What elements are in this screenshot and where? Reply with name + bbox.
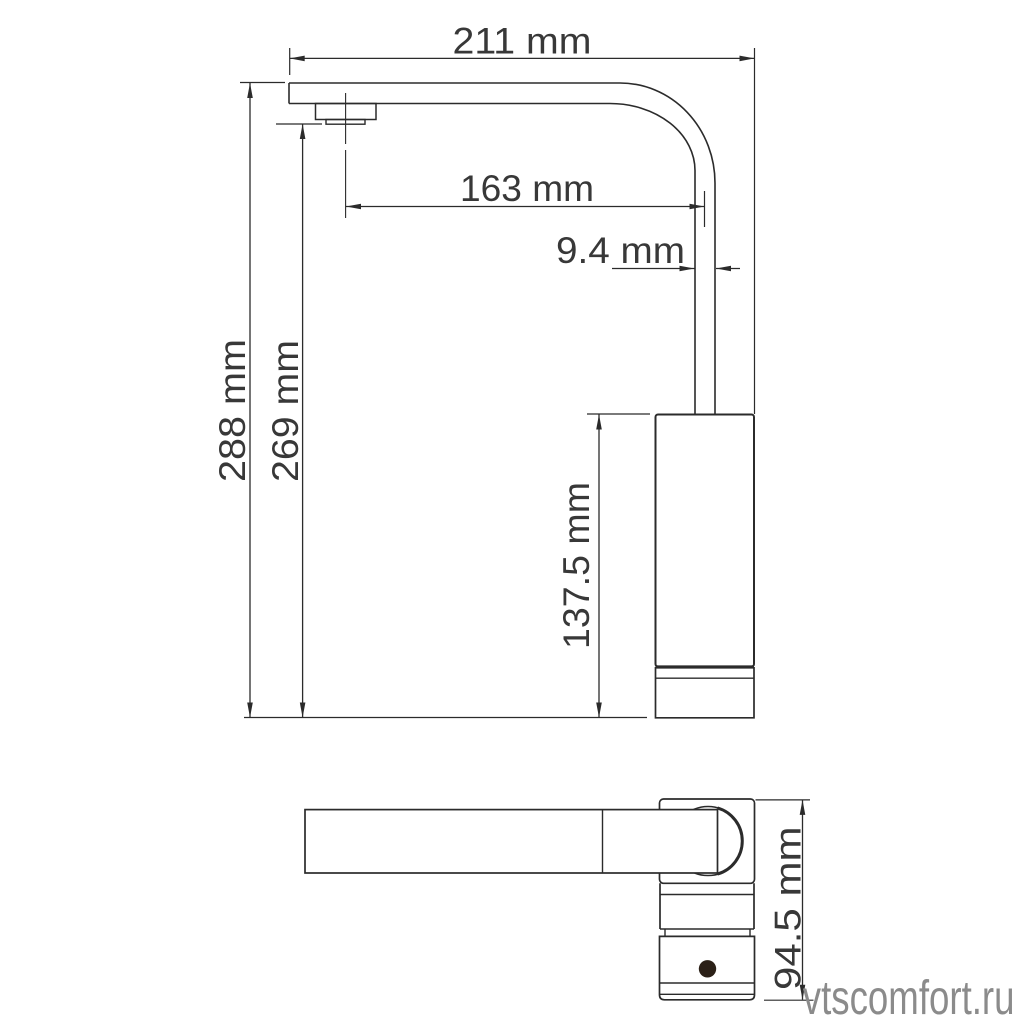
svg-text:9.4 mm: 9.4 mm <box>556 230 685 271</box>
svg-text:288 mm: 288 mm <box>212 339 253 482</box>
svg-text:269 mm: 269 mm <box>265 340 306 482</box>
svg-text:211 mm: 211 mm <box>453 21 592 62</box>
svg-text:vtscomfort.ru: vtscomfort.ru <box>803 972 1015 1025</box>
svg-text:137.5 mm: 137.5 mm <box>556 482 597 649</box>
svg-text:163 mm: 163 mm <box>460 168 594 209</box>
